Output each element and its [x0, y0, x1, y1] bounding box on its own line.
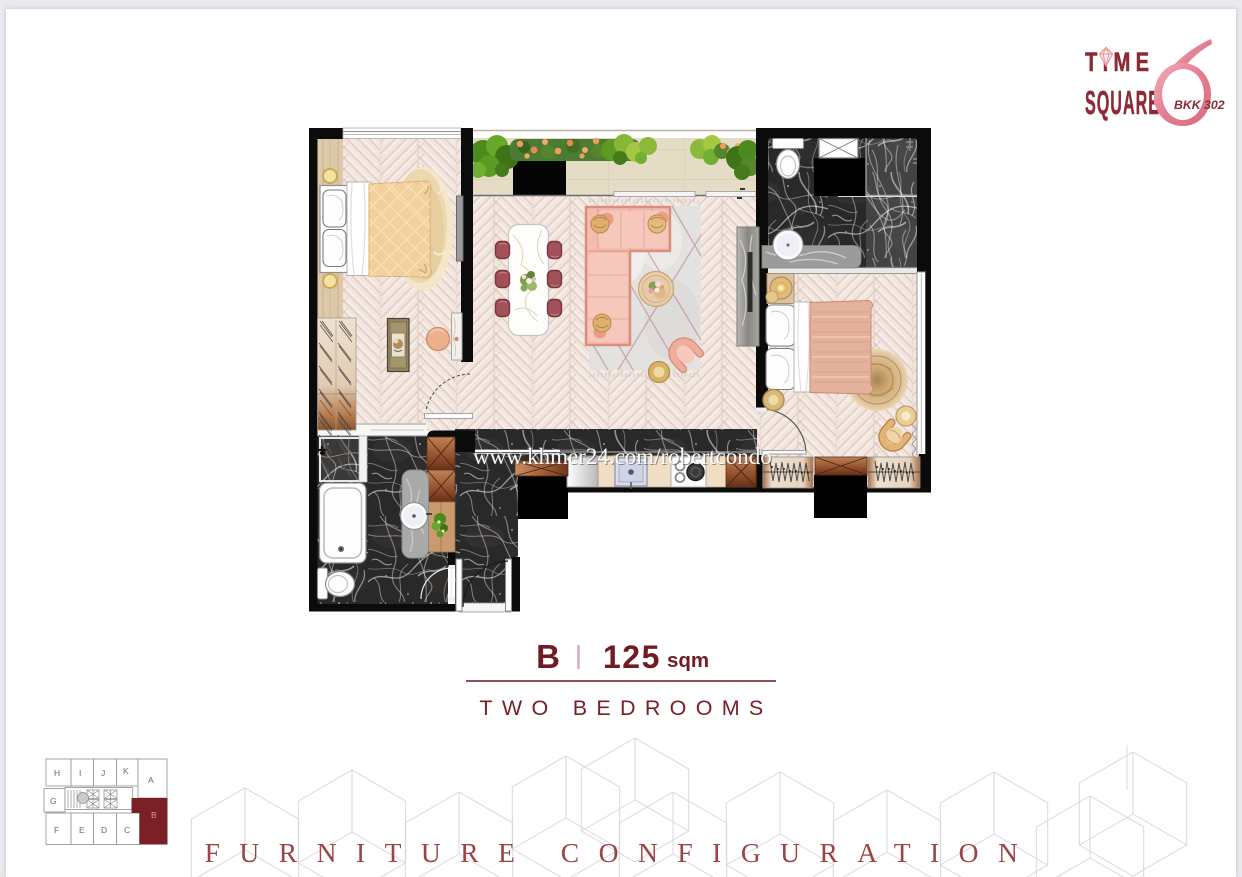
svg-text:TWO BEDROOMS: TWO BEDROOMS	[479, 696, 772, 720]
svg-text:C: C	[124, 825, 130, 835]
svg-text:D: D	[101, 825, 107, 835]
svg-text:G: G	[50, 796, 57, 806]
svg-text:A: A	[148, 775, 154, 785]
svg-text:H: H	[54, 768, 60, 778]
svg-text:J: J	[101, 768, 105, 778]
svg-text:K: K	[123, 766, 129, 776]
svg-text:www.khmer24.com/robertcondo: www.khmer24.com/robertcondo	[473, 444, 772, 469]
svg-text:I: I	[79, 768, 81, 778]
svg-text:sqm: sqm	[667, 649, 709, 672]
svg-text:FURNITURE CONFIGURATION: FURNITURE CONFIGURATION	[205, 837, 1038, 868]
svg-text:TIME: TIME	[1085, 47, 1154, 78]
svg-text:E: E	[79, 825, 85, 835]
svg-text:BKK 302: BKK 302	[1174, 98, 1225, 112]
svg-text:B: B	[151, 810, 157, 820]
svg-text:125: 125	[603, 639, 661, 675]
svg-text:SQUARE: SQUARE	[1085, 84, 1160, 122]
svg-text:B: B	[536, 638, 560, 675]
svg-text:F: F	[54, 825, 59, 835]
